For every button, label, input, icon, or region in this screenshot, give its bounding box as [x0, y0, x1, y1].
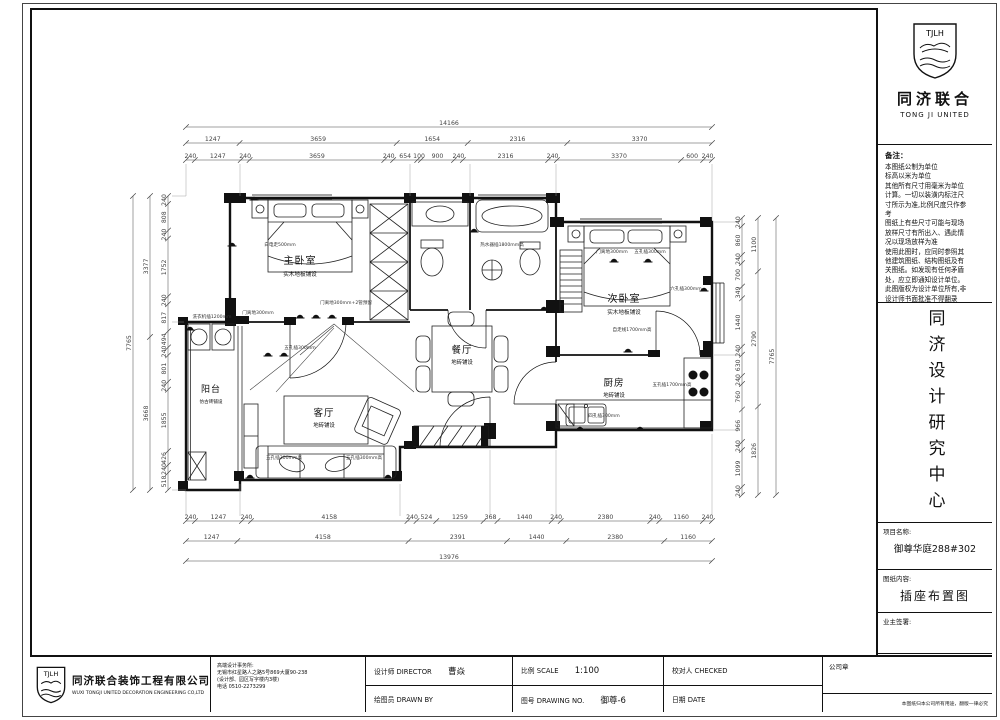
dim-label: 240 [161, 229, 168, 241]
company-seal-label: 公司章 [823, 657, 992, 694]
bathroom-fixtures [412, 202, 468, 276]
project-name-section: 项目名称: 御尊华庭288#302 [878, 523, 992, 570]
room-sub-kitchen: 地砖铺设 [603, 391, 625, 399]
company-short-cn: 同济联合 [878, 88, 992, 109]
list-line: (设计部、园区写字楼内3楼) [217, 677, 359, 684]
dining-set [416, 312, 508, 406]
scale-cell: 比例 SCALE 1:100 图号 DRAWING NO. 御尊-6 [512, 657, 663, 712]
director-label: 设计师 DIRECTOR [374, 668, 432, 676]
socket-annotation: 五孔插1700mm高 [652, 381, 691, 388]
dim-label: 240 [550, 514, 562, 521]
dim-label: 1247 [210, 153, 226, 160]
dim-label: 1259 [452, 514, 468, 521]
company-short-en: TONG JI UNITED [878, 111, 992, 119]
title-bar: TJLH 同济联合装饰工程有限公司 WUXI TONGJI UNITED DEC… [30, 655, 992, 712]
room-label-living: 客厅 [313, 407, 334, 419]
dim-label: 3377 [143, 259, 150, 275]
dim-label: 240 [735, 485, 742, 497]
drawing-no-value: 御尊-6 [600, 694, 625, 706]
dim-label: 240 [239, 153, 251, 160]
lamp [674, 230, 682, 238]
list-line: 寸所示为准,比例尺度只作参 [885, 201, 985, 210]
dim-label: 2316 [498, 153, 514, 160]
socket-annotation: 五孔插300mm高 [266, 454, 302, 461]
dim-label: 3659 [310, 136, 326, 143]
dim-label: 240 [735, 440, 742, 452]
room-label-master: 主卧室 [284, 254, 317, 267]
dim-label: 4158 [321, 514, 337, 521]
dim-label: 100 [413, 153, 425, 160]
socket-annotation: 门离地300mm [242, 309, 274, 316]
project-name-value: 御尊华庭288#302 [883, 541, 987, 555]
room-label-dining: 餐厅 [451, 344, 472, 356]
dim-label: 817 [161, 312, 168, 324]
studio-vertical-title: 同济设计研究中心 [923, 309, 948, 517]
dim-label: 240 [241, 514, 253, 521]
dim-label: 801 [161, 363, 168, 375]
room-sub-balcony: 仿古砖铺设 [200, 398, 223, 405]
dim-label: 7765 [769, 349, 776, 365]
dim-label: 524 [420, 514, 432, 521]
dim-label: 240 [383, 153, 395, 160]
socket-annotation: 门离地300mm+2管预留 [320, 299, 372, 306]
room-label-kitchen: 厨房 [603, 377, 624, 389]
list-line: 使用此图时，应同时参照其 [885, 248, 985, 257]
dim-label: 240 [161, 463, 168, 475]
dim-label: 1440 [517, 514, 533, 521]
company-name-cn: 同济联合装饰工程有限公司 [72, 673, 210, 688]
company-seal-cell: 公司章 本图纸归本公司所有用途，翻版一律必究 [822, 657, 992, 712]
scale-label: 比例 SCALE [521, 667, 559, 675]
dim-label: 3370 [611, 153, 627, 160]
list-line: 电话 0510-2273299 [217, 684, 359, 691]
dim-label: 3370 [632, 136, 648, 143]
dim-label: 3668 [143, 406, 150, 422]
dim-label: 900 [432, 153, 444, 160]
dim-label: 240 [735, 374, 742, 386]
entry-door-box [414, 426, 488, 446]
logo-section: TJLH 同济联合 TONG JI UNITED [878, 8, 992, 145]
dim-label: 966 [735, 420, 742, 432]
room-label-second: 次卧室 [608, 292, 641, 305]
title-block-sidebar: TJLH 同济联合 TONG JI UNITED 备注： 本图纸公制为单位标高以… [876, 8, 992, 655]
socket-annotation: 五孔插300mm高 [346, 454, 382, 461]
dim-label: 240 [161, 294, 168, 306]
list-line: 本图纸公制为单位 [885, 163, 985, 172]
company-crest-small-icon: TJLH [36, 666, 66, 704]
list-line: 高端设计事务所: [217, 663, 359, 670]
room-sub-master: 实木地板铺设 [283, 270, 317, 278]
copyright-note: 本图纸归本公司所有用途，翻版一律必究 [823, 694, 992, 707]
owner-signature-section: 业主签署: [878, 613, 992, 654]
list-line: 设计师书面批准不得翻录 [885, 295, 985, 303]
notes-section: 备注： 本图纸公制为单位标高以米为单位其他所有尺寸用毫米为单位计算。一切以装潢内… [878, 145, 992, 303]
dim-label: 518 [161, 475, 168, 487]
socket-annotation: 洗衣机插1200mm [192, 313, 232, 320]
company-cell: TJLH 同济联合装饰工程有限公司 WUXI TONGJI UNITED DEC… [30, 657, 210, 712]
dim-label: 349 [735, 286, 742, 298]
list-line: 况以现场放样为准 [885, 238, 985, 247]
dim-label: 2380 [598, 514, 614, 521]
dim-label: 240 [453, 153, 465, 160]
dim-label: 240 [702, 514, 714, 521]
socket-annotation: 门离地300mm [596, 248, 628, 255]
dim-label: 1247 [204, 534, 220, 541]
list-line: 其他所有尺寸用毫米为单位 [885, 182, 985, 191]
dim-label: 240 [185, 514, 197, 521]
date-label: 日期 DATE [672, 696, 705, 704]
dim-label: 1247 [205, 136, 221, 143]
dim-label: 240 [735, 216, 742, 228]
director-value: 曹焱 [448, 665, 465, 677]
list-line: 标高以米为单位 [885, 172, 985, 181]
lamp [256, 205, 264, 213]
director-cell: 设计师 DIRECTOR 曹焱 绘图员 DRAWN BY [365, 657, 512, 712]
list-line: 图纸上有些尺寸可能与现场 [885, 219, 985, 228]
room-label-balcony: 阳台 [201, 383, 221, 395]
project-name-label: 项目名称: [883, 526, 987, 536]
lamp [572, 230, 580, 238]
dim-label: 2391 [450, 534, 466, 541]
dim-label: 808 [161, 211, 168, 223]
list-line: 计算。一切以装潢内标注尺 [885, 191, 985, 200]
dim-label: 600 [686, 153, 698, 160]
dim-label: 1440 [735, 315, 742, 331]
dim-label: 240 [649, 514, 661, 521]
office-info-lines: 高端设计事务所:无锡市红星路人之路5号869大厦90-238(设计部、园区写字楼… [217, 663, 359, 691]
dim-label: 700 [735, 269, 742, 281]
drawn-by-label: 绘图员 DRAWN BY [374, 696, 433, 704]
drawing-sheet: 主卧室 实木地板铺设 次卧室 实木地板铺设 餐厅 地砖铺设 客厅 地砖铺设 厨房… [0, 0, 1000, 720]
hall-leader-lines [250, 324, 414, 392]
room-sub-living: 地砖铺设 [313, 421, 335, 429]
dim-label: 7765 [126, 335, 133, 351]
dim-label: 240 [702, 153, 714, 160]
crest-abbr-small: TJLH [43, 669, 59, 677]
lamp [356, 205, 364, 213]
drawing-no-label: 图号 DRAWING NO. [521, 697, 584, 705]
dim-label: 860 [735, 235, 742, 247]
dim-label: 1752 [161, 259, 168, 275]
room-sub-second: 实木地板铺设 [607, 308, 641, 316]
dim-label: 240 [161, 380, 168, 392]
furniture [188, 200, 712, 480]
socket-annotation: 自走线1700mm高 [612, 326, 651, 333]
nightstand [670, 226, 686, 242]
dim-label: 240 [161, 194, 168, 206]
notes-title: 备注： [885, 150, 985, 161]
company-name-en: WUXI TONGJI UNITED DECORATION ENGINEERIN… [72, 691, 210, 696]
dim-label: 1440 [529, 534, 545, 541]
wardrobe-master [370, 204, 408, 320]
dim-label: 1826 [751, 443, 758, 459]
bathtub-room [476, 200, 548, 280]
office-info-cell: 高端设计事务所:无锡市红星路人之路5号869大厦90-238(设计部、园区写字楼… [210, 657, 365, 712]
dim-label: 368 [485, 514, 497, 521]
socket-annotation: 白电走500mm [264, 241, 296, 248]
dim-label: 14166 [439, 120, 459, 127]
dim-label: 426 [161, 452, 168, 464]
room-sub-dining: 地砖铺设 [451, 358, 473, 366]
dim-label: 1855 [161, 412, 168, 428]
dim-label: 13976 [439, 554, 459, 561]
dim-label: 2790 [751, 331, 758, 347]
list-line: 无锡市红星路人之路5号869大厦90-238 [217, 670, 359, 677]
dim-label: 240 [735, 345, 742, 357]
nightstand [352, 200, 368, 218]
owner-signature-label: 业主签署: [883, 616, 987, 626]
dim-label: 494 [161, 333, 168, 345]
company-crest-icon: TJLH [912, 22, 958, 80]
dim-label: 1654 [424, 136, 440, 143]
stove-burners [412, 371, 709, 447]
dim-label: 4158 [315, 534, 331, 541]
dim-label: 2316 [510, 136, 526, 143]
list-line: 放样尺寸有所出入、遇此情 [885, 229, 985, 238]
checked-label: 校对人 CHECKED [672, 667, 727, 675]
dim-label: 1099 [735, 461, 742, 477]
dim-label: 240 [735, 253, 742, 265]
crest-abbr: TJLH [925, 29, 944, 38]
socket-annotation: 热水器插1800mm高 [480, 241, 524, 248]
dim-label: 240 [185, 153, 197, 160]
list-line: 关图纸。如发现有任何矛盾 [885, 266, 985, 275]
dim-label: 630 [735, 359, 742, 371]
floor-plan: 主卧室 实木地板铺设 次卧室 实木地板铺设 餐厅 地砖铺设 客厅 地砖铺设 厨房… [0, 0, 1000, 720]
kitchen-set [556, 358, 712, 428]
drawing-content-value: 插座布置图 [883, 587, 987, 604]
scale-value: 1:100 [575, 666, 600, 676]
nightstand [568, 226, 584, 242]
notes-lines: 本图纸公制为单位标高以米为单位其他所有尺寸用毫米为单位计算。一切以装潢内标注尺寸… [885, 163, 985, 303]
dim-label: 1100 [751, 237, 758, 253]
list-line: 处，应立即通知设计单位。 [885, 276, 985, 285]
socket-annotation: 六孔插300mm [670, 285, 702, 292]
checked-cell: 校对人 CHECKED 日期 DATE [663, 657, 822, 712]
drawing-content-section: 图纸内容: 插座布置图 [878, 570, 992, 613]
dim-label: 654 [399, 153, 411, 160]
studio-title-section: 同济设计研究中心 [878, 303, 992, 523]
dim-label: 240 [161, 345, 168, 357]
dim-label: 1247 [211, 514, 227, 521]
dim-label: 760 [735, 391, 742, 403]
drawing-content-label: 图纸内容: [883, 573, 987, 583]
dim-label: 3659 [309, 153, 325, 160]
list-line: 此图版权为设计单位所有,非 [885, 285, 985, 294]
extension-lines [172, 164, 738, 516]
nightstand [252, 200, 268, 218]
dim-label: 1160 [680, 534, 696, 541]
socket-annotation: 五孔插300mm [634, 248, 666, 255]
dim-label: 240 [406, 514, 418, 521]
dim-label: 2380 [607, 534, 623, 541]
dim-label: 1160 [673, 514, 689, 521]
socket-annotation: 五孔插300mm [284, 344, 316, 351]
dim-label: 240 [547, 153, 559, 160]
socket-annotation: 四孔插300mm [588, 412, 620, 419]
